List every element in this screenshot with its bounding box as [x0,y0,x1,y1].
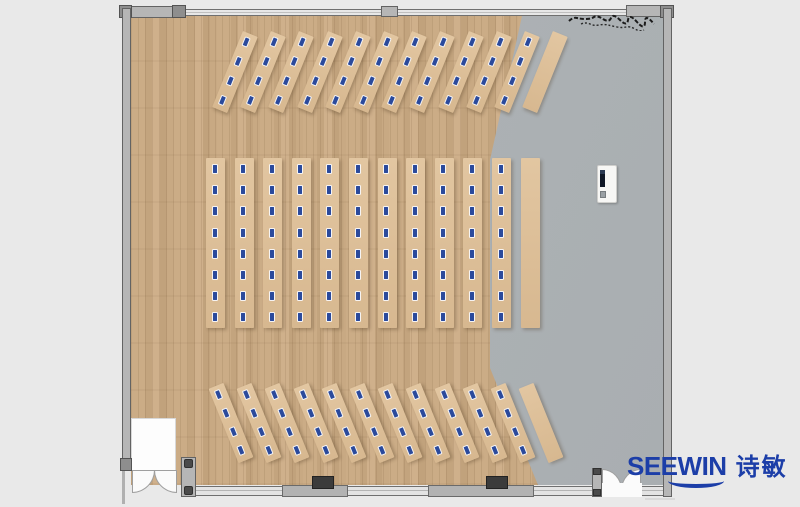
monitor-mark [219,96,226,105]
monitor-mark [384,313,388,321]
monitor-mark [298,313,302,321]
monitor-mark [469,390,476,399]
monitor-mark [238,446,245,455]
monitor-mark [213,207,217,215]
monitor-mark [384,207,388,215]
monitor-mark [470,250,474,258]
monitor-mark [441,390,448,399]
monitor-mark [499,292,503,300]
monitor-mark [299,37,306,46]
monitor-mark [230,427,237,436]
monitor-mark [213,271,217,279]
monitor-mark [445,96,452,105]
monitor-mark [327,229,331,237]
monitor-mark [279,409,286,418]
monitor-mark [371,427,378,436]
monitor-mark [525,37,532,46]
monitor-mark [356,229,360,237]
monitor-mark [241,186,245,194]
monitor-mark [328,390,335,399]
monitor-mark [470,313,474,321]
monitor-mark [213,186,217,194]
monitor-mark [266,446,273,455]
desk-area [0,0,800,507]
ground-line [645,498,675,500]
desk-strip-center-columns [463,158,482,328]
monitor-mark [499,207,503,215]
monitor-mark [470,186,474,194]
monitor-mark [241,313,245,321]
monitor-mark [356,390,363,399]
monitor-mark [413,271,417,279]
monitor-mark [298,229,302,237]
monitor-mark [481,76,488,85]
monitor-mark [243,37,250,46]
monitor-mark [441,271,445,279]
monitor-mark [213,229,217,237]
monitor-mark [304,96,311,105]
monitor-mark [427,427,434,436]
monitor-mark [473,96,480,105]
monitor-mark [509,76,516,85]
monitor-mark [307,409,314,418]
scribble-mark [567,13,659,31]
monitor-mark [213,250,217,258]
desk-strip-center-columns [406,158,425,328]
monitor-mark [376,57,383,66]
monitor-mark [505,409,512,418]
monitor-mark [270,313,274,321]
monitor-mark [286,427,293,436]
monitor-mark [319,57,326,66]
monitor-mark [470,229,474,237]
monitor-mark [294,446,301,455]
monitor-mark [412,390,419,399]
monitor-mark [312,76,319,85]
monitor-mark [456,427,463,436]
monitor-mark [501,96,508,105]
monitor-mark [270,271,274,279]
podium-vent [600,191,606,198]
monitor-mark [258,427,265,436]
desk-strip-center-columns [320,158,339,328]
monitor-mark [315,427,322,436]
monitor-mark [476,409,483,418]
monitor-mark [356,292,360,300]
monitor-mark [460,57,467,66]
monitor-mark [413,292,417,300]
monitor-mark [270,229,274,237]
monitor-mark [432,57,439,66]
monitor-mark [213,292,217,300]
monitor-mark [298,165,302,173]
monitor-mark [379,446,386,455]
monitor-mark [291,57,298,66]
monitor-mark [298,271,302,279]
floor-plan-canvas: SEEWIN诗敏 [0,0,800,507]
monitor-mark [283,76,290,85]
brand-logo-cjk: 诗敏 [736,454,788,481]
monitor-mark [300,390,307,399]
monitor-mark [241,165,245,173]
desk-strip-center-columns [292,158,311,328]
desk-strip-center-columns [435,158,454,328]
monitor-mark [468,37,475,46]
monitor-mark [213,313,217,321]
monitor-mark [223,409,230,418]
desk-strip-center-columns [521,158,540,328]
monitor-mark [356,165,360,173]
monitor-mark [384,186,388,194]
monitor-mark [270,186,274,194]
monitor-mark [470,292,474,300]
monitor-mark [298,207,302,215]
monitor-mark [384,271,388,279]
monitor-mark [416,96,423,105]
desk-strip-center-columns [492,158,511,328]
podium [597,165,617,203]
monitor-mark [396,76,403,85]
monitor-mark [413,165,417,173]
monitor-mark [298,186,302,194]
monitor-mark [335,409,342,418]
monitor-mark [332,96,339,105]
monitor-mark [499,186,503,194]
monitor-mark [484,427,491,436]
monitor-mark [499,313,503,321]
monitor-mark [364,409,371,418]
monitor-mark [440,37,447,46]
monitor-mark [453,76,460,85]
monitor-mark [271,37,278,46]
monitor-mark [270,250,274,258]
monitor-mark [388,96,395,105]
desk-strip-center-columns [235,158,254,328]
monitor-mark [298,292,302,300]
monitor-mark [420,409,427,418]
monitor-mark [255,76,262,85]
monitor-mark [343,427,350,436]
monitor-mark [441,292,445,300]
monitor-mark [350,446,357,455]
monitor-mark [241,271,245,279]
monitor-mark [499,165,503,173]
monitor-mark [356,250,360,258]
monitor-mark [270,165,274,173]
monitor-mark [356,186,360,194]
desk-strip-center-columns [349,158,368,328]
monitor-mark [251,409,258,418]
monitor-mark [517,57,524,66]
monitor-mark [435,446,442,455]
desk-strip-center-columns [206,158,225,328]
monitor-mark [499,229,503,237]
monitor-mark [270,292,274,300]
monitor-mark [241,207,245,215]
monitor-mark [491,446,498,455]
monitor-mark [441,313,445,321]
monitor-mark [399,427,406,436]
monitor-mark [413,229,417,237]
monitor-mark [413,313,417,321]
monitor-mark [463,446,470,455]
monitor-mark [270,207,274,215]
monitor-mark [241,229,245,237]
monitor-mark [215,390,222,399]
logo-swoosh-icon [668,474,724,488]
monitor-mark [470,165,474,173]
monitor-mark [263,57,270,66]
monitor-mark [413,186,417,194]
monitor-mark [327,313,331,321]
monitor-mark [499,250,503,258]
monitor-mark [441,186,445,194]
monitor-mark [213,165,217,173]
monitor-mark [441,250,445,258]
monitor-mark [327,250,331,258]
monitor-mark [412,37,419,46]
monitor-mark [241,292,245,300]
monitor-mark [327,207,331,215]
monitor-mark [392,409,399,418]
monitor-mark [384,165,388,173]
podium-screen [600,170,605,187]
monitor-mark [520,446,527,455]
monitor-mark [448,409,455,418]
monitor-mark [441,229,445,237]
monitor-mark [356,313,360,321]
monitor-mark [470,271,474,279]
monitor-mark [340,76,347,85]
monitor-mark [327,37,334,46]
monitor-mark [243,390,250,399]
monitor-mark [441,165,445,173]
monitor-mark [327,292,331,300]
monitor-mark [327,165,331,173]
monitor-mark [499,271,503,279]
monitor-mark [497,390,504,399]
monitor-mark [413,207,417,215]
monitor-mark [384,292,388,300]
monitor-mark [384,229,388,237]
desk-strip-center-columns [378,158,397,328]
desk-strip-center-columns [263,158,282,328]
monitor-mark [470,207,474,215]
monitor-mark [384,390,391,399]
monitor-mark [407,446,414,455]
monitor-mark [424,76,431,85]
monitor-mark [327,186,331,194]
monitor-mark [327,271,331,279]
monitor-mark [235,57,242,66]
monitor-mark [271,390,278,399]
monitor-mark [356,37,363,46]
monitor-mark [512,427,519,436]
monitor-mark [247,96,254,105]
monitor-mark [441,207,445,215]
monitor-mark [356,207,360,215]
monitor-mark [413,250,417,258]
monitor-mark [356,271,360,279]
monitor-mark [368,76,375,85]
monitor-mark [227,76,234,85]
monitor-mark [348,57,355,66]
monitor-mark [489,57,496,66]
monitor-mark [275,96,282,105]
monitor-mark [384,37,391,46]
monitor-mark [241,250,245,258]
monitor-mark [360,96,367,105]
monitor-mark [384,250,388,258]
monitor-mark [322,446,329,455]
brand-logo: SEEWIN诗敏 [627,447,788,487]
monitor-mark [298,250,302,258]
monitor-mark [497,37,504,46]
monitor-mark [404,57,411,66]
